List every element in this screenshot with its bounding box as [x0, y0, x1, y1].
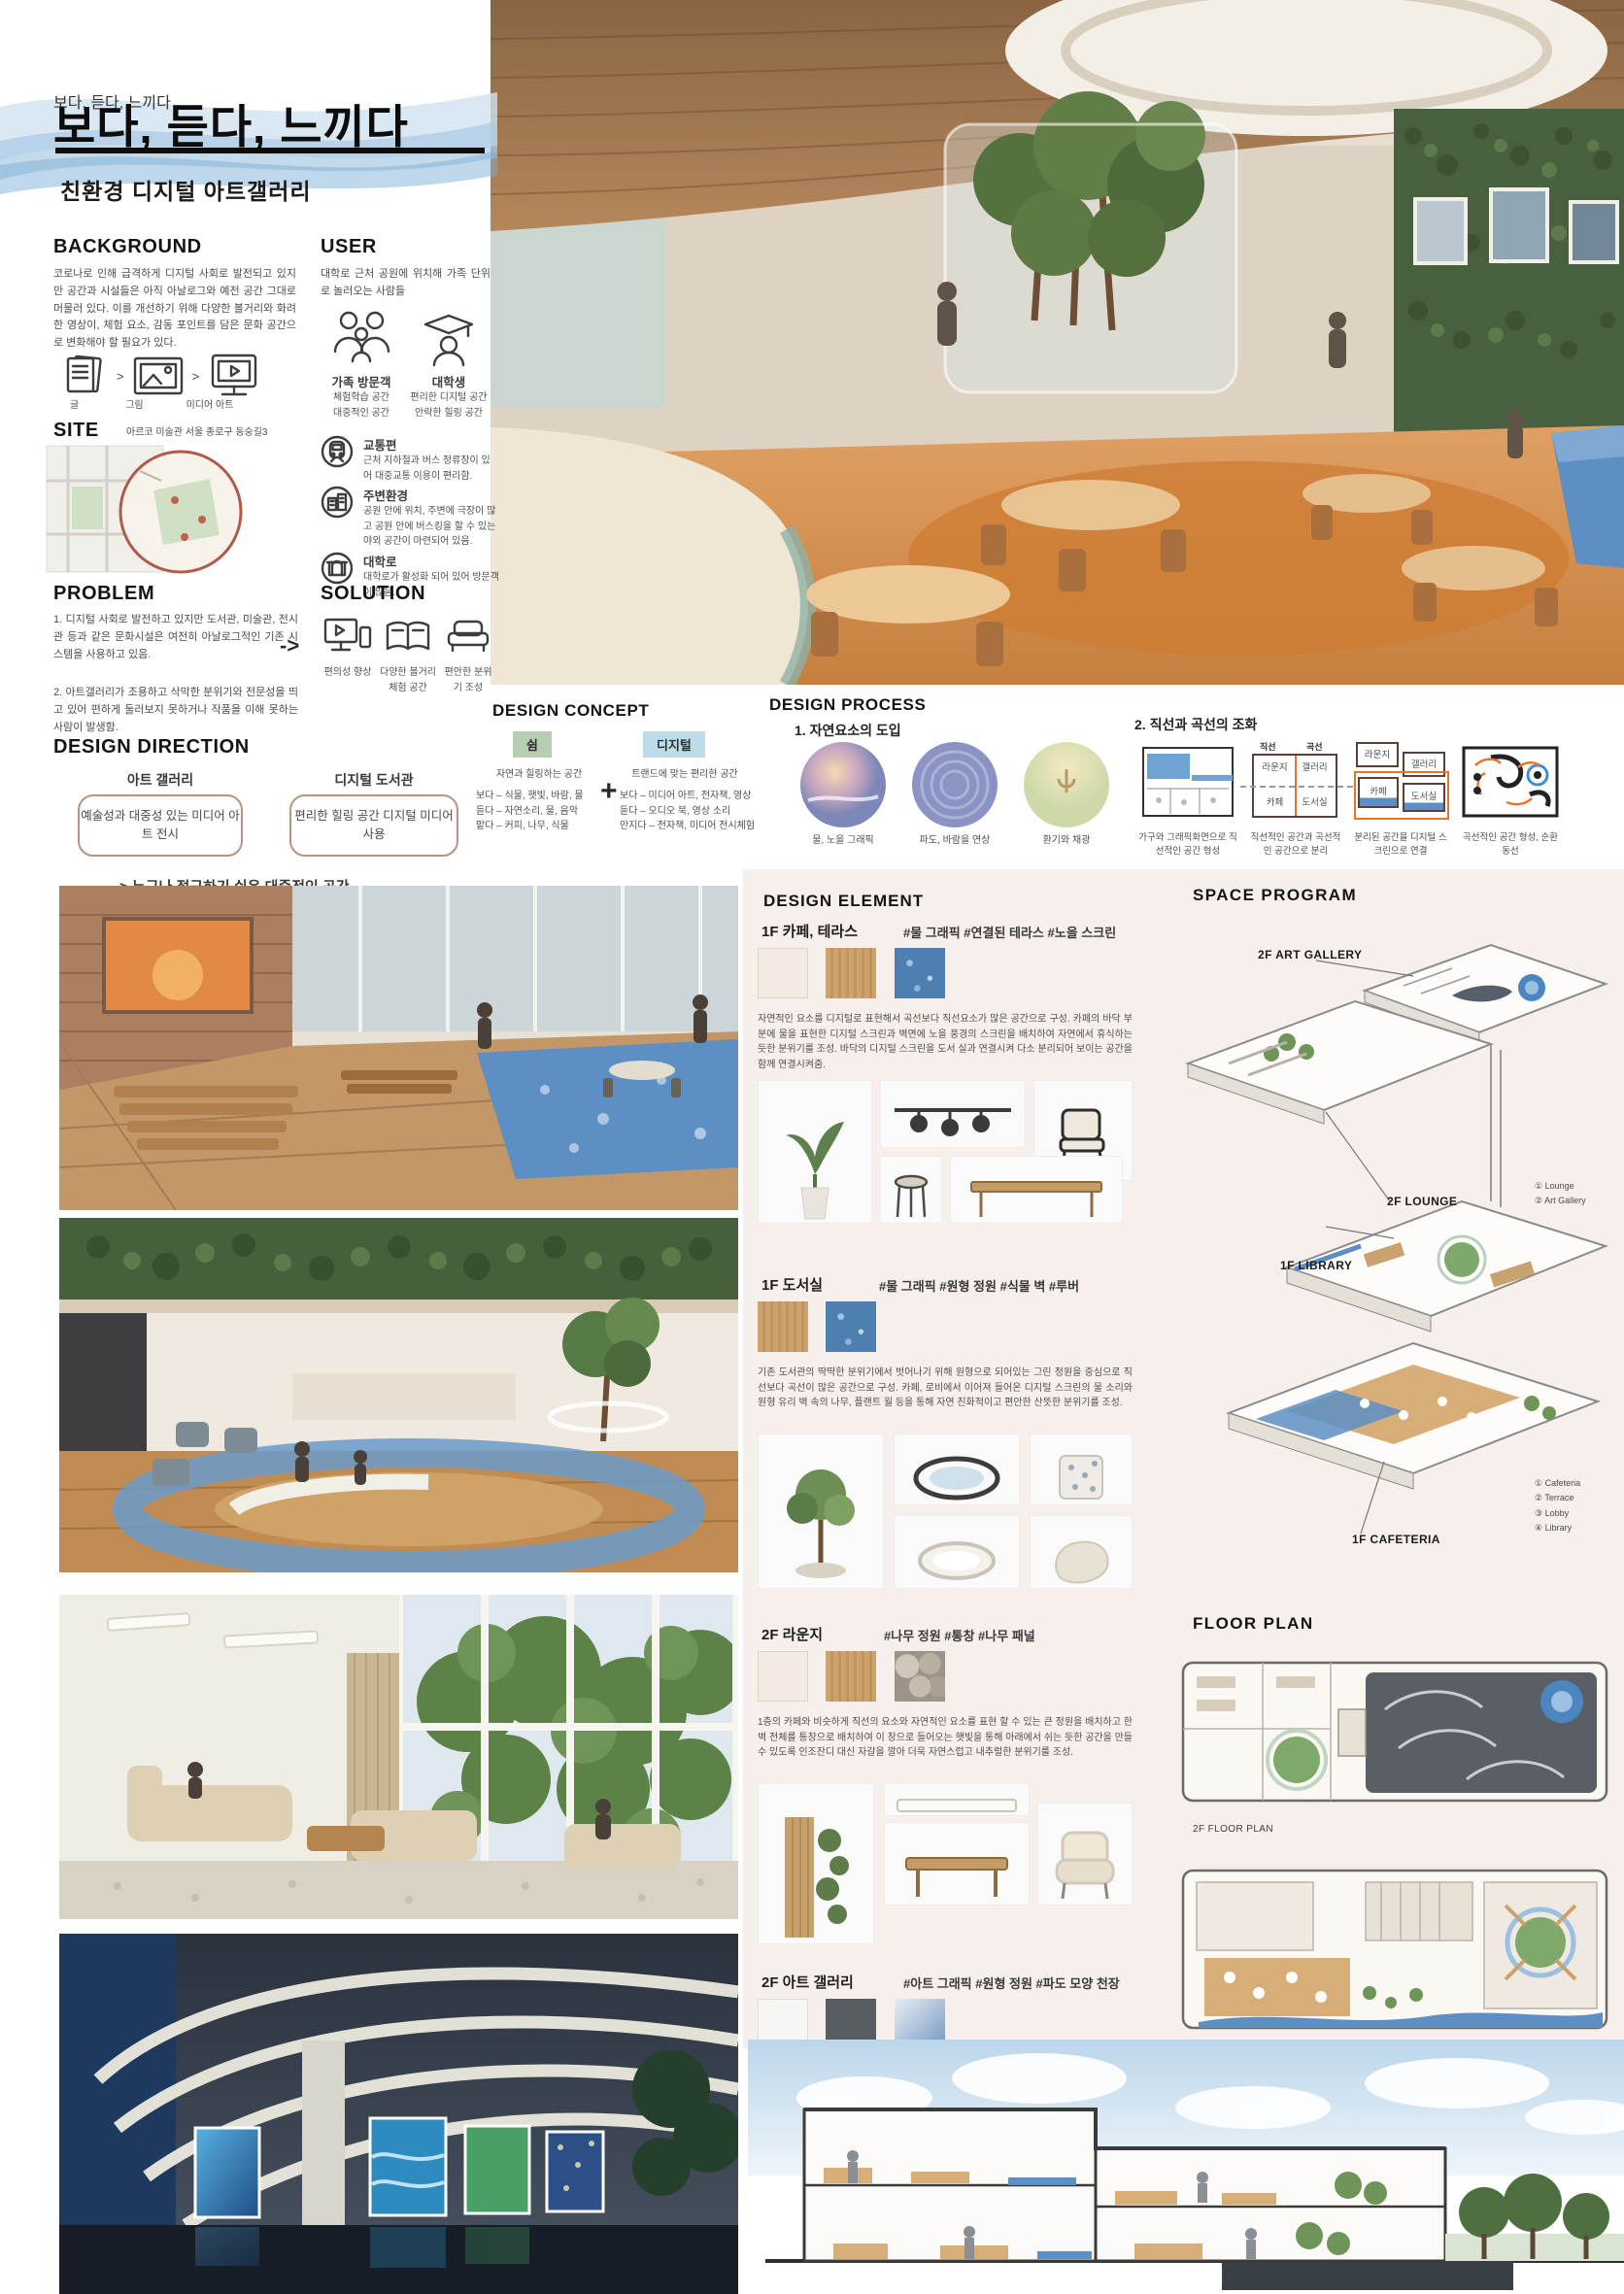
concept-digital-lines: 보다 – 미디어 아트, 전자책, 영상 듣다 – 오디오 북, 영상 소리 만… [620, 789, 765, 834]
persona-trait: 편리한 디지털 공간 [407, 390, 491, 406]
text-doc-icon [60, 354, 109, 398]
element4-title: 2F 아트 갤러리 [761, 1972, 854, 1992]
product-photo-table [950, 1156, 1123, 1224]
legend-item: ② Terrace [1535, 1491, 1580, 1505]
material-swatch-cream [758, 1651, 808, 1702]
feature-body: 공원 안에 위치, 주변에 극장이 많고 공원 안에 버스킹을 할 수 있는 야… [363, 504, 499, 550]
product-photo-stool [880, 1156, 942, 1224]
persona-trait: 체험학습 공간 [321, 390, 402, 406]
product-photo-coffee-table [884, 1822, 1030, 1906]
feature-title: 교통편 [363, 435, 495, 454]
process-diagram-split: 직선 곡선 라운지 갤러리 카페 도서실 [1252, 740, 1337, 822]
concept-digital-subtitle: 트랜드에 맞는 편리한 공간 [612, 767, 758, 783]
site-feature-surroundings: 주변환경 공원 안에 위치, 주변에 극장이 많고 공원 안에 버스킹을 할 수… [321, 486, 495, 550]
callout-2f-lounge: 2F LOUNGE [1387, 1195, 1457, 1208]
step-label: 미디어 아트 [186, 398, 234, 414]
cell-cafe: 카페 [1254, 796, 1296, 810]
legend-item: ① Lounge [1535, 1179, 1586, 1194]
concept-line: 맡다 – 커피, 나무, 식물 [476, 819, 602, 834]
legend-item: ② Art Gallery [1535, 1194, 1586, 1208]
material-swatch-wood [826, 1651, 876, 1702]
material-swatch-water [895, 948, 945, 998]
direction-col1-title: 아트 갤러리 [83, 770, 238, 790]
product-photo-round-light [894, 1515, 1020, 1589]
graduate-icon [420, 309, 478, 367]
product-photo-bean-bag [1030, 1515, 1133, 1589]
devices-icon [322, 614, 373, 660]
step-separator: > [192, 369, 200, 384]
process-circle-caption: 파도, 바람을 연상 [910, 833, 999, 849]
space-program-heading: SPACE PROGRAM [1193, 886, 1357, 905]
legend-item: ④ Library [1535, 1521, 1580, 1535]
render-lounge-image [59, 1595, 738, 1919]
process-step1-images [798, 740, 1119, 847]
picture-icon [132, 354, 185, 397]
cell-library: 도서실 [1294, 796, 1336, 810]
site-map [39, 442, 253, 578]
section-drawing-image [765, 2088, 1624, 2294]
product-photo-linear-light [884, 1783, 1030, 1816]
product-photo-track-light [880, 1080, 1026, 1148]
process-diagram-plan [1141, 746, 1235, 818]
process-step1-title: 1. 자연요소의 도입 [795, 721, 901, 740]
concept-line: 보다 – 미디어 아트, 전자책, 영상 [620, 789, 765, 804]
element3-title: 2F 라운지 [761, 1624, 823, 1644]
problem-item-2: 2. 아트갤러리가 조용하고 삭막한 분위기와 전문성을 띄고 있어 편하게 둘… [53, 685, 298, 736]
concept-rest-subtitle: 자연과 힐링하는 공간 [481, 767, 597, 783]
element1-tags: #물 그래픽 #연결된 테라스 #노을 스크린 [903, 923, 1116, 941]
problem-item-1: 1. 디지털 사회로 발전하고 있지만 도서관, 미술관, 전시관 등과 같은 … [53, 612, 298, 663]
col-straight-label: 직선 [1260, 740, 1276, 753]
persona-name: 가족 방문객 [321, 372, 402, 390]
material-swatch-stone [895, 1651, 945, 1702]
persona-trait: 대중적인 공간 [321, 406, 402, 422]
callout-1f-library: 1F LIBRARY [1280, 1259, 1352, 1272]
concept-line: 보다 – 식물, 햇빛, 바람, 물 [476, 789, 602, 804]
concept-digital-badge: 디지털 [643, 731, 705, 758]
site-heading: SITE [53, 420, 99, 442]
material-swatch-cream [758, 948, 808, 998]
solution-item: 다양한 볼거리 체험 공간 [379, 614, 437, 695]
legend-2f: ① Lounge ② Art Gallery [1535, 1179, 1586, 1209]
element3-tags: #나무 정원 #통창 #나무 패널 [884, 1626, 1035, 1644]
background-body: 코로나로 인해 급격하게 디지털 사회로 발전되고 있지만 공간과 시설들은 아… [53, 266, 296, 353]
direction-col2-title: 디지털 도서관 [291, 770, 457, 790]
step-label: 글 [70, 398, 79, 414]
process-diagram-curves [1462, 746, 1559, 818]
element2-swatches [758, 1301, 890, 1352]
user-personas: 가족 방문객 체험학습 공간 대중적인 공간 대학생 편리한 디지털 공간 안락… [321, 309, 491, 421]
page-subtitle: 친환경 디지털 아트갤러리 [60, 173, 312, 206]
solution-item: 편의성 향상 [321, 614, 375, 695]
direction-col1-box: 예술성과 대중성 있는 미디어 아트 전시 [78, 794, 243, 857]
floor-plan-2f-image [1175, 1651, 1614, 1814]
box-cafe: 카페 [1358, 777, 1399, 808]
material-swatch-water [826, 1301, 876, 1352]
element2-body: 기존 도서관의 딱딱한 분위기에서 벗어나기 위해 원형으로 되어있는 그린 정… [758, 1366, 1133, 1411]
persona-family: 가족 방문객 체험학습 공간 대중적인 공간 [321, 309, 402, 421]
material-swatch-wood [826, 948, 876, 998]
callout-2f-art-gallery: 2F ART GALLERY [1258, 948, 1362, 961]
persona-name: 대학생 [407, 372, 491, 390]
render-library-image [59, 1218, 738, 1572]
process-diagram-connect: 라운지 갤러리 카페 도서실 [1354, 742, 1447, 822]
site-feature-transport: 교통편 근처 지하철과 버스 정류장이 있어 대중교통 이용이 편리함. [321, 435, 495, 484]
concept-line: 듣다 – 자연소리, 물, 음악 [476, 804, 602, 820]
buildings-icon [321, 486, 354, 519]
persona-student: 대학생 편리한 디지털 공간 안락한 힐링 공간 [407, 309, 491, 421]
element1-body: 자연적인 요소를 디지털로 표현해서 곡선보다 직선요소가 많은 공간으로 구성… [758, 1012, 1133, 1072]
render-art-gallery-image [59, 1934, 738, 2294]
solution-label: 다양한 볼거리 체험 공간 [379, 665, 437, 695]
box-library: 도서실 [1403, 783, 1445, 812]
product-photo-pattern-cube [1030, 1434, 1133, 1505]
solution-item: 편안한 분위기 조성 [441, 614, 495, 695]
concept-rest-lines: 보다 – 식물, 햇빛, 바람, 물 듣다 – 자연소리, 물, 음악 맡다 –… [476, 789, 602, 834]
media-art-icon [207, 352, 261, 400]
background-steps: > > [60, 352, 303, 400]
gate-icon [321, 552, 354, 585]
element4-tags: #아트 그래픽 #원형 정원 #파도 모양 천장 [903, 1974, 1120, 1992]
step-separator: > [117, 369, 124, 384]
floor-plan-heading: FLOOR PLAN [1193, 1614, 1314, 1634]
render-cafe-terrace-image [59, 886, 738, 1210]
hero-render-image [491, 0, 1624, 685]
process-circle-caption: 물, 노을 그래픽 [798, 833, 888, 849]
feature-body: 근처 지하철과 버스 정류장이 있어 대중교통 이용이 편리함. [363, 454, 495, 484]
design-concept-heading: DESIGN CONCEPT [492, 701, 649, 721]
element2-tags: #물 그래픽 #원형 정원 #식물 벽 #루버 [879, 1276, 1079, 1295]
box-lounge: 라운지 [1356, 742, 1399, 767]
concept-line: 듣다 – 오디오 북, 영상 소리 [620, 804, 765, 820]
process-diagram-caption: 직선적인 공간과 곡선적인 공간으로 분리 [1247, 831, 1344, 859]
product-photo-tree [758, 1434, 884, 1589]
process-diagram-caption: 분리된 공간을 디지털 스크린으로 연결 [1352, 831, 1449, 859]
feature-title: 주변환경 [363, 486, 495, 504]
sofa-icon [443, 614, 493, 660]
cell-lounge: 라운지 [1254, 761, 1296, 775]
background-heading: BACKGROUND [53, 236, 202, 258]
floor-plan-2f-label: 2F FLOOR PLAN [1193, 1824, 1273, 1835]
solution-label: 편의성 향상 [321, 665, 375, 681]
book-icon [383, 614, 433, 660]
concept-line: 만지다 – 전자책, 미디어 전시체험 [620, 819, 765, 834]
element2-title: 1F 도서실 [761, 1274, 823, 1295]
product-photo-armchair [1037, 1803, 1133, 1906]
problem-heading: PROBLEM [53, 583, 154, 605]
user-heading: USER [321, 236, 377, 258]
element3-body: 1층의 카페와 비슷하게 직선의 요소와 자연적인 요소를 표현 할 수 있는 … [758, 1715, 1133, 1761]
solution-label: 편안한 분위기 조성 [441, 665, 495, 695]
legend-1f: ① Cafeteria ② Terrace ③ Lobby ④ Library [1535, 1476, 1580, 1535]
process-step2-title: 2. 직선과 곡선의 조화 [1134, 715, 1257, 734]
cell-gallery: 갤러리 [1294, 761, 1336, 775]
element1-swatches [758, 948, 959, 998]
feature-title: 대학로 [363, 552, 495, 570]
user-body: 대학로 근처 공원에 위치해 가족 단위로 놀러오는 사람들 [321, 266, 491, 301]
process-diagram-caption: 가구와 그래픽화면으로 직선적인 공간 형성 [1136, 831, 1239, 859]
legend-item: ① Cafeteria [1535, 1476, 1580, 1491]
family-icon [329, 309, 393, 367]
persona-trait: 안락한 힐링 공간 [407, 406, 491, 422]
element3-swatches [758, 1651, 959, 1702]
solution-items: 편의성 향상 다양한 볼거리 체험 공간 편안한 분위기 조성 [321, 614, 495, 695]
process-circle-caption: 환기와 채광 [1022, 833, 1111, 849]
title-underline [55, 148, 485, 153]
design-process-heading: DESIGN PROCESS [769, 695, 926, 715]
solution-heading: SOLUTION [321, 583, 425, 605]
sunset-photo [800, 742, 886, 827]
product-photo-skylight-ring [894, 1434, 1020, 1505]
solution-arrow: -> [280, 633, 299, 658]
col-curve-label: 곡선 [1306, 740, 1323, 753]
concept-rest-badge: 쉼 [513, 731, 552, 758]
page-title-text: 보다, 듣다, 느끼다 [53, 89, 500, 156]
design-direction-heading: DESIGN DIRECTION [53, 736, 250, 759]
step-label: 그림 [125, 398, 143, 414]
background-step-labels: 글 그림 미디어 아트 [60, 398, 303, 414]
process-diagram-caption: 곡선적인 공간 형성, 순환 동선 [1459, 831, 1562, 859]
design-element-heading: DESIGN ELEMENT [763, 892, 924, 911]
product-photo-plant-panel [758, 1783, 874, 1944]
legend-item: ③ Lobby [1535, 1506, 1580, 1521]
site-address: 아르코 미술관 서울 종로구 동숭길3 [126, 425, 282, 441]
direction-col2-box: 편리한 힐링 공간 디지털 미디어 사용 [289, 794, 458, 857]
presentation-board: 보다, 듣다, 느끼다 보다, 듣다, 느끼다 친환경 디지털 아트갤러리 BA… [0, 0, 1624, 2294]
product-photo-plant [758, 1080, 872, 1224]
element1-title: 1F 카페, 테라스 [761, 921, 858, 941]
callout-1f-cafeteria: 1F CAFETERIA [1352, 1533, 1440, 1546]
train-icon [321, 435, 354, 468]
material-swatch-wood [758, 1301, 808, 1352]
floor-plan-1f-image [1175, 1857, 1614, 2043]
